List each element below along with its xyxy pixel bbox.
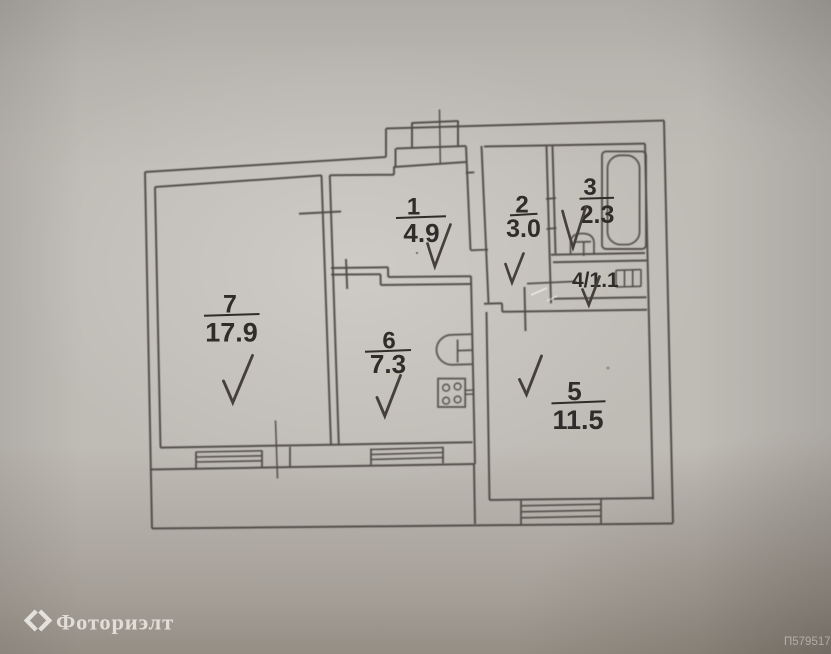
svg-text:3.0: 3.0 — [506, 215, 541, 243]
svg-text:П579517: П579517 — [784, 636, 831, 648]
svg-text:4.9: 4.9 — [403, 218, 439, 248]
svg-text:2.3: 2.3 — [580, 201, 615, 229]
svg-text:3: 3 — [583, 174, 596, 201]
svg-text:11.5: 11.5 — [552, 405, 603, 435]
svg-text:17.9: 17.9 — [205, 318, 258, 348]
svg-text:Фоториэлт: Фоториэлт — [56, 610, 174, 635]
